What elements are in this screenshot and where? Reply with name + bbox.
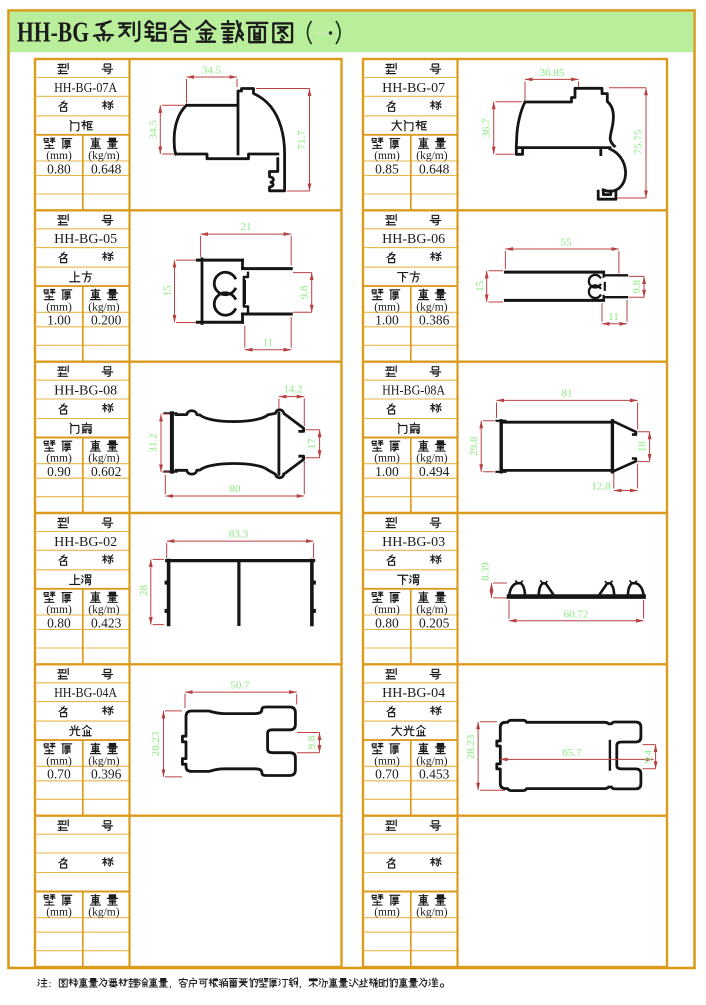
svg-text:0.494: 0.494 bbox=[419, 464, 450, 479]
svg-text:0.648: 0.648 bbox=[91, 161, 122, 176]
svg-text:34.5: 34.5 bbox=[148, 120, 160, 140]
svg-text:55: 55 bbox=[561, 237, 573, 249]
svg-text:0.70: 0.70 bbox=[375, 767, 399, 782]
svg-text:83.3: 83.3 bbox=[229, 529, 249, 541]
svg-text:0.80: 0.80 bbox=[47, 615, 71, 630]
svg-text:11: 11 bbox=[608, 311, 619, 323]
svg-text:1.00: 1.00 bbox=[375, 464, 399, 479]
svg-text:,: , bbox=[299, 978, 302, 990]
svg-text:36.85: 36.85 bbox=[540, 67, 565, 79]
svg-text:36.7: 36.7 bbox=[480, 118, 492, 138]
svg-text:12.8: 12.8 bbox=[591, 481, 611, 493]
svg-text:29.8: 29.8 bbox=[468, 436, 480, 456]
svg-text:HH-BG-03: HH-BG-03 bbox=[382, 535, 445, 550]
svg-text:15: 15 bbox=[474, 280, 486, 292]
svg-text:0.80: 0.80 bbox=[47, 161, 71, 176]
svg-text:65.7: 65.7 bbox=[562, 747, 582, 759]
svg-text:HH-BG-02: HH-BG-02 bbox=[54, 535, 117, 550]
svg-text:HH-BG-05: HH-BG-05 bbox=[54, 232, 117, 247]
svg-text:28: 28 bbox=[138, 585, 150, 597]
svg-text:60.72: 60.72 bbox=[564, 609, 589, 621]
svg-text:HH-BG-08A: HH-BG-08A bbox=[382, 384, 446, 399]
svg-text:50.7: 50.7 bbox=[230, 680, 250, 692]
svg-text:HH-BG-06: HH-BG-06 bbox=[382, 232, 445, 247]
svg-text:15: 15 bbox=[162, 285, 174, 297]
svg-text:28.23: 28.23 bbox=[150, 731, 162, 756]
svg-text:8.39: 8.39 bbox=[480, 562, 491, 580]
svg-text:HH-BG-07A: HH-BG-07A bbox=[54, 81, 118, 96]
svg-text:75.75: 75.75 bbox=[633, 129, 645, 154]
svg-text:0.85: 0.85 bbox=[375, 161, 399, 176]
svg-text:0.453: 0.453 bbox=[419, 767, 450, 782]
svg-text:9.8: 9.8 bbox=[306, 735, 318, 749]
svg-text:11: 11 bbox=[263, 337, 274, 349]
svg-text:0.90: 0.90 bbox=[47, 464, 71, 479]
svg-text:1.00: 1.00 bbox=[375, 313, 399, 328]
svg-text:1.00: 1.00 bbox=[47, 313, 71, 328]
svg-text:28.23: 28.23 bbox=[465, 734, 477, 759]
svg-text:71.7: 71.7 bbox=[296, 130, 308, 150]
svg-text:HH-BG-04A: HH-BG-04A bbox=[54, 686, 118, 701]
svg-text:0.396: 0.396 bbox=[91, 767, 122, 782]
svg-text:17: 17 bbox=[306, 438, 318, 450]
svg-text:0.70: 0.70 bbox=[47, 767, 71, 782]
svg-text:HH-BG-04: HH-BG-04 bbox=[382, 686, 445, 701]
svg-text:14.2: 14.2 bbox=[283, 384, 302, 396]
svg-text:80: 80 bbox=[230, 483, 242, 495]
svg-text:9.4: 9.4 bbox=[643, 749, 654, 763]
svg-text:34.5: 34.5 bbox=[202, 65, 222, 77]
svg-text:0.386: 0.386 bbox=[419, 313, 450, 328]
svg-text:0.648: 0.648 bbox=[419, 161, 450, 176]
svg-text:0.205: 0.205 bbox=[419, 615, 450, 630]
svg-text:31.2: 31.2 bbox=[148, 433, 160, 452]
svg-text:21: 21 bbox=[241, 221, 252, 233]
svg-text:0.423: 0.423 bbox=[91, 615, 122, 630]
svg-text:HH-BG: HH-BG bbox=[17, 17, 89, 49]
svg-text:9.8: 9.8 bbox=[631, 279, 643, 293]
svg-text::: : bbox=[49, 978, 52, 990]
svg-text:9.8: 9.8 bbox=[298, 285, 310, 299]
svg-text:0.80: 0.80 bbox=[375, 615, 399, 630]
svg-text:81: 81 bbox=[562, 388, 573, 400]
svg-text:0.200: 0.200 bbox=[91, 313, 122, 328]
svg-text:HH-BG-08: HH-BG-08 bbox=[54, 384, 117, 399]
svg-text:HH-BG-07: HH-BG-07 bbox=[382, 81, 445, 96]
svg-text:0.602: 0.602 bbox=[91, 464, 121, 479]
svg-text:18: 18 bbox=[636, 441, 648, 453]
svg-text:,: , bbox=[169, 978, 172, 990]
